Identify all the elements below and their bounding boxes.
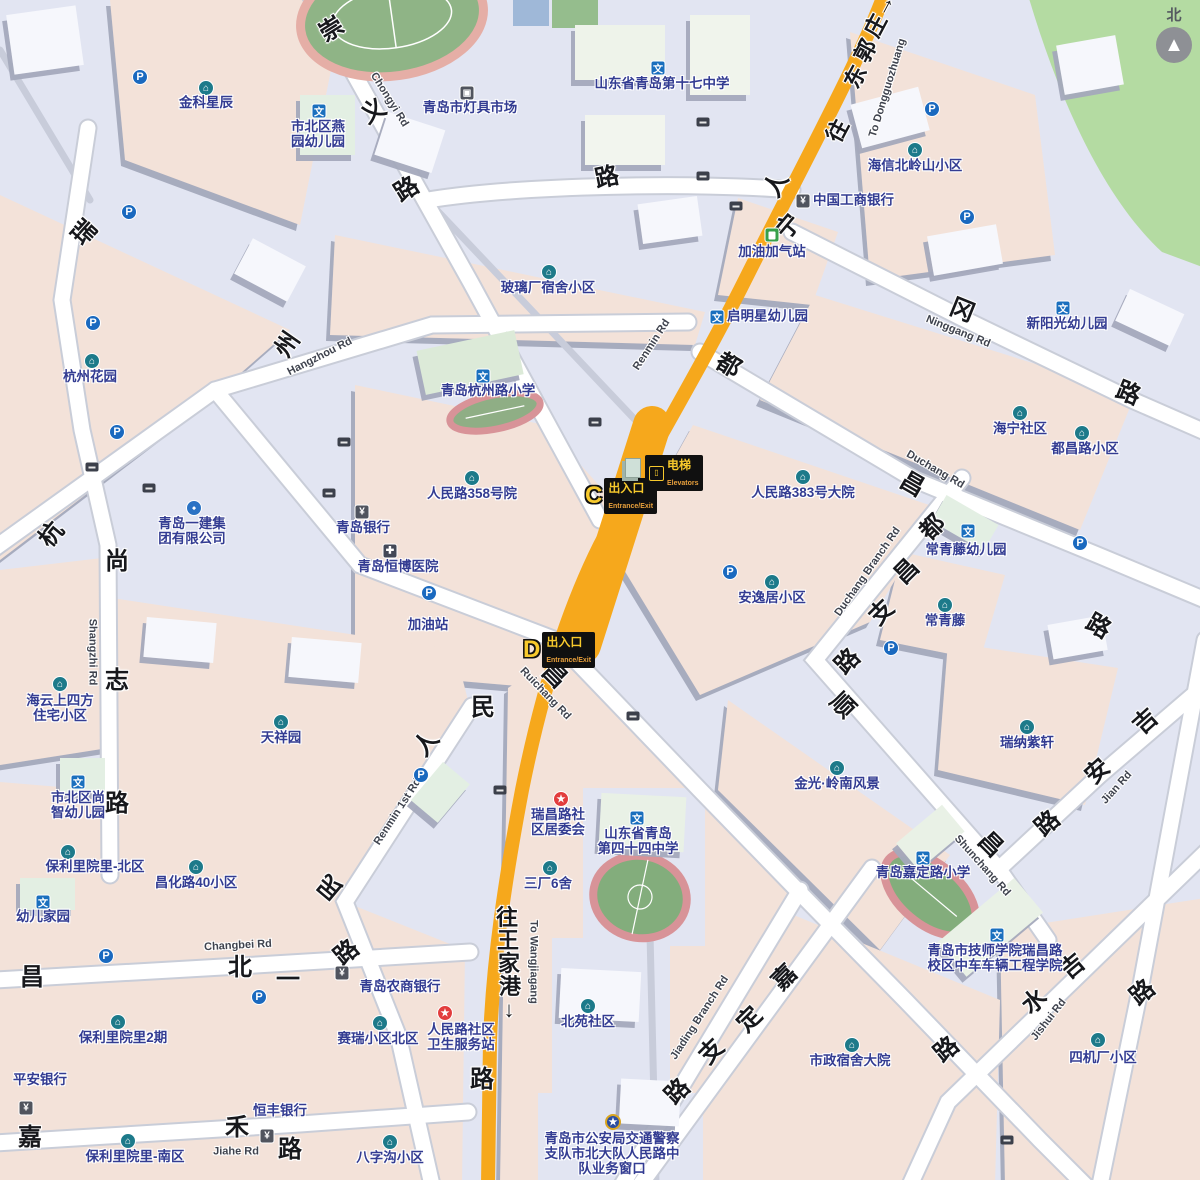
changhua-40-community-icon[interactable]: ⌂ bbox=[188, 859, 204, 875]
shangzhi-rd-char-2: 路 bbox=[105, 792, 129, 816]
police-service-window-police-icon[interactable]: ★ bbox=[605, 1114, 621, 1130]
haixin-beilingshan-label[interactable]: 海信北岭山小区 bbox=[868, 159, 963, 174]
xinyangguang-kindergarten-label[interactable]: 新阳光幼儿园 bbox=[1027, 317, 1108, 332]
icbc-bank-label[interactable]: 中国工商银行 bbox=[813, 194, 894, 209]
beiyuan-community-icon[interactable]: ⌂ bbox=[580, 998, 596, 1014]
shunchang-rd-char-0: 顺 bbox=[825, 689, 859, 723]
parking-icon-4[interactable]: P bbox=[924, 101, 940, 117]
haining-label[interactable]: 海宁社区 bbox=[993, 422, 1047, 437]
changhua-40-label[interactable]: 昌化路40小区 bbox=[155, 876, 238, 891]
ruichanglu-committee-label[interactable]: 瑞昌路社区居委会 bbox=[531, 808, 585, 838]
no44-middle-school-school-icon[interactable]: 文 bbox=[630, 811, 645, 826]
ninggang-rd-char-2: 路 bbox=[1112, 378, 1143, 409]
changbei-rd-char-1: 北 bbox=[228, 956, 252, 980]
renminlu-358-community-icon[interactable]: ⌂ bbox=[464, 470, 480, 486]
jiadinglu-primary-label[interactable]: 青岛嘉定路小学 bbox=[876, 866, 971, 881]
anyiju-label[interactable]: 安逸居小区 bbox=[738, 591, 806, 606]
dengju-market-label[interactable]: 青岛市灯具市场 bbox=[423, 101, 518, 116]
renminlu-383-label[interactable]: 人民路383号大院 bbox=[751, 486, 855, 501]
to-dongguozhuang-char-2: 郭 bbox=[851, 36, 881, 66]
jian-rd-char-0: 吉 bbox=[1129, 705, 1163, 739]
parking-icon-10[interactable]: P bbox=[413, 767, 429, 783]
qingdao-bank-bank-icon[interactable]: ¥ bbox=[355, 505, 370, 520]
traffic-sign-icon-1 bbox=[697, 172, 710, 181]
map-labels-layer: 崇义路Chongyi Rd瑞杭州Hangzhou Rd尚志路Shangzhi R… bbox=[0, 0, 1200, 1180]
jiahe-rd-char-1: 禾 bbox=[225, 1116, 249, 1140]
jian-rd-char-1: 安 bbox=[1081, 755, 1115, 789]
hengfeng-bank-bank-icon[interactable]: ¥ bbox=[260, 1129, 275, 1144]
hengbo-hospital-hospital-icon[interactable]: ✚ bbox=[383, 544, 398, 559]
parking-icon-11[interactable]: P bbox=[98, 948, 114, 964]
ruina-zixuan-label[interactable]: 瑞纳紫轩 bbox=[1000, 736, 1054, 751]
sanchang-6she-community-icon[interactable]: ⌂ bbox=[542, 860, 558, 876]
compass: 北 ▲ bbox=[1148, 4, 1200, 63]
traffic-sign-icon-9 bbox=[494, 786, 507, 795]
renminlu-383-community-icon[interactable]: ⌂ bbox=[795, 469, 811, 485]
parking-icon-3[interactable]: P bbox=[109, 424, 125, 440]
hengfeng-bank-label[interactable]: 恒丰银行 bbox=[253, 1104, 307, 1119]
renminlu-clinic-label[interactable]: 人民路社区卫生服务站 bbox=[427, 1023, 495, 1053]
haining-community-icon[interactable]: ⌂ bbox=[1012, 405, 1028, 421]
jishui-rd-char-2: 路 bbox=[930, 1033, 964, 1067]
chongyi-rd-char-0: 崇 bbox=[315, 13, 348, 46]
youer-jiayuan-label[interactable]: 幼儿家园 bbox=[16, 910, 70, 925]
bolichang-sushe-community-icon[interactable]: ⌂ bbox=[541, 264, 557, 280]
lu-right-upper-char-0: 路 bbox=[1082, 611, 1115, 644]
hangzhoulu-primary-school-icon[interactable]: 文 bbox=[476, 369, 491, 384]
traffic-sign-icon-5 bbox=[338, 438, 351, 447]
changqingteng-community-icon[interactable]: ⌂ bbox=[937, 597, 953, 613]
traffic-sign-icon-10 bbox=[1001, 1136, 1014, 1145]
traffic-sign-icon-6 bbox=[323, 489, 336, 498]
parking-icon-12[interactable]: P bbox=[251, 989, 267, 1005]
sijichang-community-icon[interactable]: ⌂ bbox=[1090, 1032, 1106, 1048]
anyiju-community-icon[interactable]: ⌂ bbox=[764, 574, 780, 590]
entrance-d-letter: D bbox=[523, 638, 540, 662]
shangzhi-kindergarten-label[interactable]: 市北区尚智幼儿园 bbox=[51, 791, 105, 821]
entrance-c-letter: C bbox=[585, 484, 602, 508]
map-canvas[interactable]: 崇义路Chongyi Rd瑞杭州Hangzhou Rd尚志路Shangzhi R… bbox=[0, 0, 1200, 1180]
hengbo-hospital-label[interactable]: 青岛恒博医院 bbox=[358, 560, 439, 575]
shangzhi-rd-char-1: 志 bbox=[105, 669, 129, 693]
pingan-bank-label[interactable]: 平安银行 bbox=[13, 1073, 67, 1088]
yanyuan-kindergarten-label[interactable]: 市北区燕园幼儿园 bbox=[291, 120, 345, 150]
baoli-phase2-community-icon[interactable]: ⌂ bbox=[110, 1014, 126, 1030]
jiading-rd-char-0: 嘉 bbox=[768, 961, 802, 995]
elevator-label: 电梯 bbox=[667, 458, 691, 472]
hangzhou-rd-char-0: 杭 bbox=[35, 518, 69, 552]
baoli-south-label[interactable]: 保利里院里-南区 bbox=[86, 1150, 185, 1165]
lu-right-lower-char-0: 路 bbox=[1126, 976, 1160, 1010]
jiahe-rd-char-0: 嘉 bbox=[18, 1126, 42, 1150]
yijian-group-company-icon[interactable]: ⬩ bbox=[186, 500, 202, 516]
changqingteng-kindergarten-label[interactable]: 常青藤幼儿园 bbox=[926, 543, 1007, 558]
to-wangjiagang-char-1: 王 bbox=[497, 930, 519, 952]
ruina-zixuan-community-icon[interactable]: ⌂ bbox=[1019, 719, 1035, 735]
rural-commercial-bank-bank-icon[interactable]: ¥ bbox=[335, 966, 350, 981]
bolichang-sushe-label[interactable]: 玻璃厂宿舍小区 bbox=[501, 281, 596, 296]
jishi-college-school-icon[interactable]: 文 bbox=[990, 928, 1005, 943]
gas-cng-station-gas-icon[interactable] bbox=[765, 228, 780, 243]
rural-commercial-bank-label[interactable]: 青岛农商银行 bbox=[360, 980, 441, 995]
parking-icon-2[interactable]: P bbox=[85, 315, 101, 331]
jian-rd-char-2: 路 bbox=[1031, 807, 1065, 841]
metro-entrance-d[interactable]: D 出入口 Entrance/Exit bbox=[523, 632, 595, 668]
traffic-sign-icon-0 bbox=[697, 118, 710, 127]
shizheng-dayuan-community-icon[interactable]: ⌂ bbox=[844, 1037, 860, 1053]
duchanglu-xiaoqu-label[interactable]: 都昌路小区 bbox=[1051, 442, 1119, 457]
youer-jiayuan-school-icon[interactable]: 文 bbox=[36, 895, 51, 910]
haixin-beilingshan-community-icon[interactable]: ⌂ bbox=[907, 142, 923, 158]
hangzhou-rd-char-1: 州 bbox=[271, 328, 304, 361]
yanyuan-kindergarten-school-icon[interactable]: 文 bbox=[312, 104, 327, 119]
entrance-d-sublabel: Entrance/Exit bbox=[546, 657, 591, 664]
jinke-xingchen-label[interactable]: 金科星辰 bbox=[179, 96, 233, 111]
duchang-rd-char-0: 都 bbox=[712, 350, 745, 383]
traffic-sign-icon-8 bbox=[627, 712, 640, 721]
duchang-branch-rd-char-0: 都 bbox=[916, 511, 950, 545]
haiyun-sifang-label[interactable]: 海云上四方住宅小区 bbox=[26, 694, 94, 724]
yijian-group-label[interactable]: 青岛一建集团有限公司 bbox=[158, 517, 226, 547]
icbc-bank-bank-icon[interactable]: ¥ bbox=[796, 194, 811, 209]
parking-icon-9[interactable]: P bbox=[1072, 535, 1088, 551]
jiadinglu-primary-school-icon[interactable]: 文 bbox=[916, 851, 931, 866]
pingan-bank-bank-icon[interactable]: ¥ bbox=[19, 1101, 34, 1116]
hangzhoulu-primary-label[interactable]: 青岛杭州路小学 bbox=[441, 384, 536, 399]
qimingxing-kindergarten-label[interactable]: 启明星幼儿园 bbox=[727, 310, 808, 325]
compass-arrow-icon: ▲ bbox=[1156, 27, 1192, 63]
gas-cng-station-label[interactable]: 加油加气站 bbox=[738, 245, 806, 260]
duchang-branch-rd-char-3: 路 bbox=[831, 645, 865, 679]
to-wangjiagang-char-4: ↓ bbox=[504, 999, 515, 1021]
hangzhou-garden-label[interactable]: 杭州花园 bbox=[63, 370, 117, 385]
shangzhi-rd-en-label: Shangzhi Rd bbox=[87, 619, 98, 686]
parking-icon-5[interactable]: P bbox=[959, 209, 975, 225]
elevator-icon: ▯ bbox=[649, 466, 664, 481]
chongyi-rd-char-2: 路 bbox=[390, 173, 423, 206]
no17-middle-school-school-icon[interactable]: 文 bbox=[651, 61, 666, 76]
elevator-sublabel: Elevators bbox=[667, 480, 699, 487]
renminlu-clinic-star-icon[interactable]: ★ bbox=[437, 1005, 453, 1021]
renmin-rd-en-label: Renmin Rd bbox=[632, 318, 673, 373]
lu-top-char-0: 路 bbox=[593, 164, 621, 192]
baoli-north-community-icon[interactable]: ⌂ bbox=[60, 844, 76, 860]
ruichanglu-committee-star-icon[interactable]: ★ bbox=[553, 791, 569, 807]
qingdao-bank-label[interactable]: 青岛银行 bbox=[336, 521, 390, 536]
parking-icon-7[interactable]: P bbox=[722, 564, 738, 580]
renmin-1st-rd-en-label: Renmin 1st Rd bbox=[372, 777, 423, 848]
sijichang-label[interactable]: 四机厂小区 bbox=[1069, 1051, 1137, 1066]
jishi-college-label[interactable]: 青岛市技师学院瑞昌路校区中车车辆工程学院 bbox=[928, 944, 1063, 974]
sanchang-6she-label[interactable]: 三厂6舍 bbox=[524, 877, 572, 892]
to-dongguozhuang-char-1: 东 bbox=[841, 62, 871, 92]
jinguang-lingnan-label[interactable]: 金光·岭南风景 bbox=[794, 777, 880, 792]
duchang-branch-rd-char-2: 支 bbox=[865, 596, 899, 630]
renmin-1st-rd-char-0: 人 bbox=[410, 727, 444, 761]
changbei-rd-char-0: 昌 bbox=[20, 966, 44, 990]
shangzhi-kindergarten-school-icon[interactable]: 文 bbox=[71, 775, 86, 790]
parking-icon-1[interactable]: P bbox=[121, 204, 137, 220]
traffic-sign-icon-4 bbox=[143, 484, 156, 493]
to-wangjiagang-char-2: 家 bbox=[498, 953, 520, 975]
xinyangguang-kindergarten-school-icon[interactable]: 文 bbox=[1056, 301, 1071, 316]
shangzhi-rd-char-0: 尚 bbox=[105, 550, 129, 574]
renmin-rd-char-1: 民 bbox=[471, 696, 495, 720]
renmin-1st-rd-char-1: 民 bbox=[313, 869, 347, 903]
to-wangjiagang-en-label: To Wangjiagang bbox=[528, 920, 539, 1004]
gas-station-label[interactable]: 加油站 bbox=[408, 618, 449, 633]
to-wangjiagang-char-3: 港 bbox=[499, 976, 521, 998]
baoli-phase2-label[interactable]: 保利里院里2期 bbox=[79, 1031, 168, 1046]
elevator-3d-cube bbox=[625, 458, 641, 478]
renmin-rd-char-0: 人 bbox=[761, 169, 794, 202]
renmin-rd-char-2: 路 bbox=[470, 1068, 494, 1092]
no44-middle-school-label[interactable]: 山东省青岛第四十四中学 bbox=[598, 827, 679, 857]
entrance-c-sublabel: Entrance/Exit bbox=[608, 503, 653, 510]
compass-north-label: 北 bbox=[1148, 4, 1200, 25]
traffic-sign-icon-3 bbox=[86, 463, 99, 472]
jiading-branch-rd-char-0: 支 bbox=[695, 1035, 729, 1069]
tianxiang-yuan-label[interactable]: 天祥园 bbox=[261, 731, 302, 746]
duchanglu-xiaoqu-community-icon[interactable]: ⌂ bbox=[1074, 425, 1090, 441]
jiading-branch-rd-char-1: 路 bbox=[661, 1075, 695, 1109]
duchang-rd-char-1: 昌 bbox=[896, 469, 929, 502]
duchang-branch-rd-char-1: 昌 bbox=[890, 555, 924, 589]
changbei-rd-char-2: 一 bbox=[276, 968, 300, 992]
to-dongguozhuang-char-0: 往 bbox=[823, 116, 853, 146]
rui-char-char-0: 瑞 bbox=[68, 216, 102, 250]
qimingxing-kindergarten-school-icon[interactable]: 文 bbox=[710, 310, 725, 325]
tianxiang-yuan-community-icon[interactable]: ⌂ bbox=[273, 714, 289, 730]
jiading-rd-char-1: 定 bbox=[733, 1003, 767, 1037]
dengju-market-shop-icon[interactable]: ▣ bbox=[460, 86, 475, 101]
sairui-north-label[interactable]: 赛瑞小区北区 bbox=[338, 1032, 419, 1047]
baoli-south-community-icon[interactable]: ⌂ bbox=[120, 1133, 136, 1149]
haiyun-sifang-community-icon[interactable]: ⌂ bbox=[52, 676, 68, 692]
baoli-north-label[interactable]: 保利里院里-北区 bbox=[46, 860, 145, 875]
shizheng-dayuan-label[interactable]: 市政宿舍大院 bbox=[810, 1054, 891, 1069]
jiahe-rd-char-2: 路 bbox=[278, 1138, 302, 1162]
hangzhou-garden-community-icon[interactable]: ⌂ bbox=[84, 353, 100, 369]
beiyuan-label[interactable]: 北苑社区 bbox=[561, 1015, 615, 1030]
renminlu-358-label[interactable]: 人民路358号院 bbox=[427, 487, 517, 502]
parking-icon-6[interactable]: P bbox=[421, 585, 437, 601]
jinke-xingchen-community-icon[interactable]: ⌂ bbox=[198, 80, 214, 96]
entrance-d-label: 出入口 bbox=[546, 635, 582, 649]
changqingteng-kindergarten-school-icon[interactable]: 文 bbox=[961, 524, 976, 539]
jinguang-lingnan-community-icon[interactable]: ⌂ bbox=[829, 760, 845, 776]
to-wangjiagang-char-0: 往 bbox=[496, 907, 518, 929]
changbei-rd-en-label: Changbei Rd bbox=[204, 939, 272, 954]
traffic-sign-icon-2 bbox=[730, 202, 743, 211]
traffic-sign-icon-7 bbox=[589, 418, 602, 427]
bazigou-label[interactable]: 八字沟小区 bbox=[356, 1151, 424, 1166]
metro-elevator[interactable]: ▯ 电梯 Elevators bbox=[645, 455, 703, 491]
changqingteng-label[interactable]: 常青藤 bbox=[925, 614, 966, 629]
jiahe-rd-en-label: Jiahe Rd bbox=[213, 1147, 259, 1158]
sairui-north-community-icon[interactable]: ⌂ bbox=[372, 1015, 388, 1031]
police-service-window-label[interactable]: 青岛市公安局交通警察支队市北大队人民路中队业务窗口 bbox=[545, 1132, 680, 1177]
no17-middle-school-label[interactable]: 山东省青岛第十七中学 bbox=[595, 77, 730, 92]
bazigou-community-icon[interactable]: ⌂ bbox=[382, 1134, 398, 1150]
parking-icon-0[interactable]: P bbox=[132, 69, 148, 85]
parking-icon-8[interactable]: P bbox=[883, 640, 899, 656]
entrance-c-label: 出入口 bbox=[608, 481, 644, 495]
